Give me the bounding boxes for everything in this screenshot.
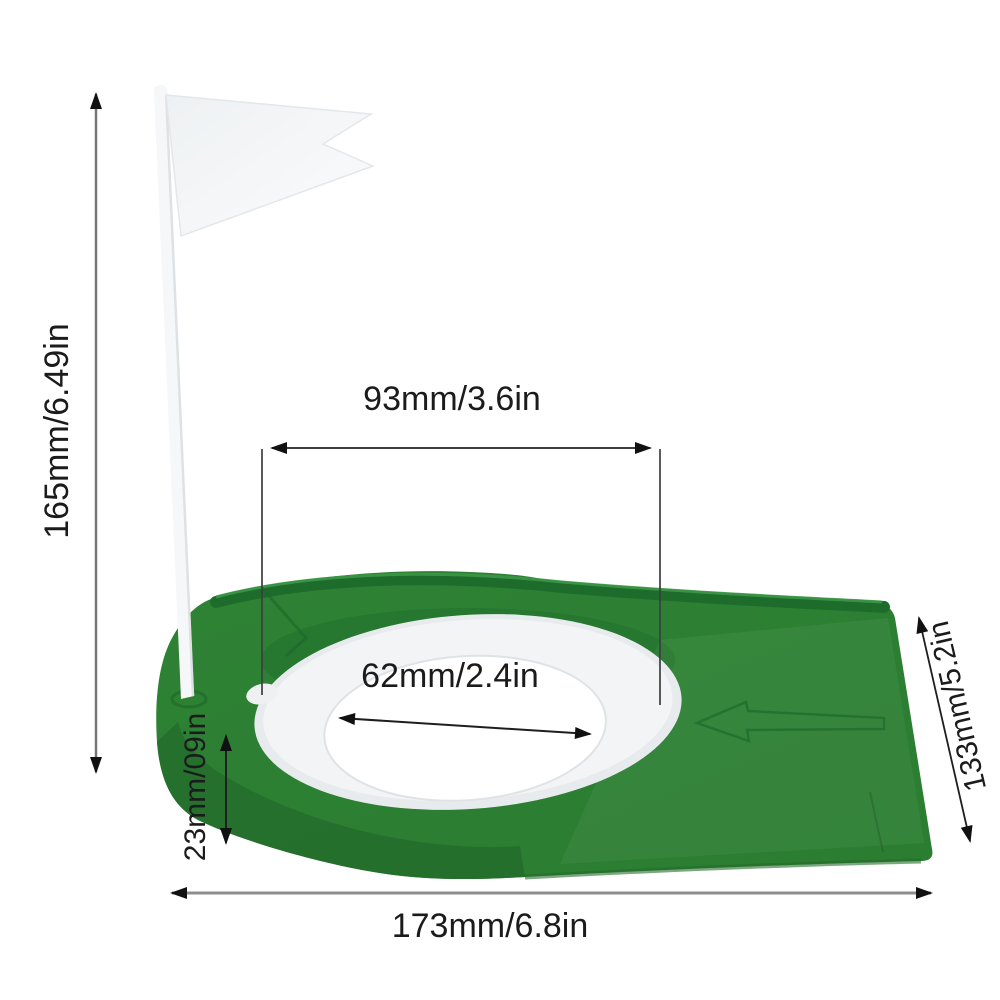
top-width-label: 93mm/3.6in [292,377,612,421]
pennant-flag [166,95,373,236]
hole-diameter-label: 62mm/2.4in [290,654,610,698]
base-height-label: 23mm/09in [174,627,218,947]
pole-height-label: 165mm/6.49in [35,271,79,591]
product-figure [0,0,1000,1000]
base-width-label: 173mm/6.8in [330,904,650,948]
putting-cup-base [156,571,932,879]
product-dimension-diagram: 165mm/6.49in 93mm/3.6in 62mm/2.4in 23mm/… [0,0,1000,1000]
